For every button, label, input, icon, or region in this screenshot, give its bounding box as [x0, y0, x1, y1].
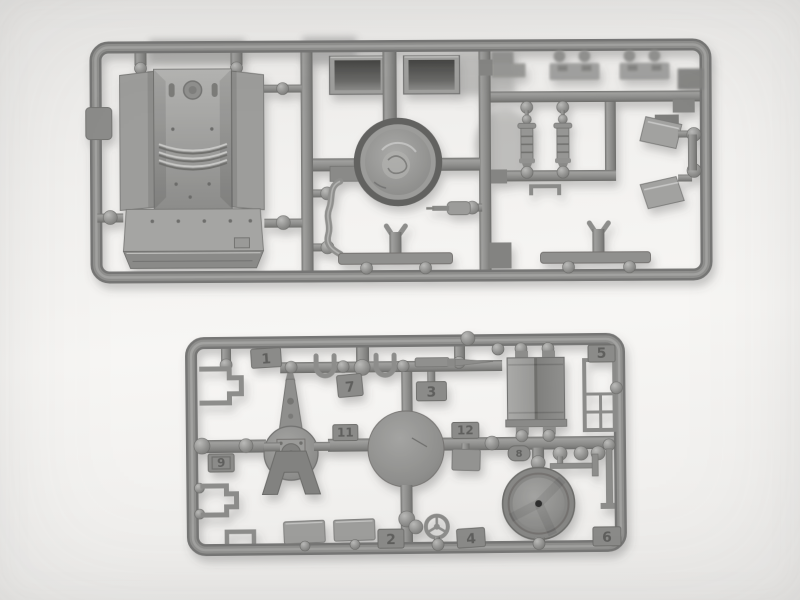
part-number-tag-12: 12: [452, 422, 479, 438]
linkage-rod-part: [550, 446, 605, 477]
part-number-tag-5: 5: [588, 345, 615, 362]
part-number-tag-7: 7: [336, 373, 363, 397]
divider-sub-horizontal: [491, 170, 616, 182]
t-bracket-part: [540, 223, 650, 274]
part-number-tag-2: 2: [378, 529, 404, 548]
stowage-box-part: [403, 56, 459, 94]
part-number-label: 4: [466, 531, 477, 548]
gate-ball: [350, 539, 360, 549]
part-number-tag-1: 1: [251, 348, 282, 369]
t-bracket-part: [338, 226, 452, 275]
small-frame-part: [227, 532, 254, 544]
blurred-suspension-parts: [491, 49, 703, 90]
road-wheel-part: [502, 447, 575, 550]
model-kit-sprues-photo: 1 7 3 9 11 12 5 8: [0, 0, 800, 600]
part-number-tag-6: 6: [593, 527, 621, 546]
curved-bracket-part: [313, 181, 340, 254]
divider-right: [478, 52, 491, 270]
upper-sprue: [85, 34, 706, 277]
part-number-label: 3: [426, 385, 436, 401]
part-number-label: 2: [386, 532, 396, 548]
part-number-label: 11: [337, 426, 354, 440]
bracket-part: [194, 483, 236, 519]
dome-part: [368, 411, 445, 543]
divider-top-cell: [491, 90, 700, 102]
spring-column-part: [554, 101, 572, 178]
part-number-label: 7: [344, 379, 355, 396]
gate-pad: [478, 60, 492, 76]
bracket-part: [199, 349, 242, 403]
stowage-box-part: [329, 56, 385, 94]
double-door-part: [505, 342, 567, 442]
gate-pad: [491, 169, 507, 183]
lower-sprue: 1 7 3 9 11 12 5 8: [191, 330, 624, 554]
gun-mount-part: [261, 373, 330, 495]
flat-plate-part: [283, 520, 325, 544]
divider-left: [300, 52, 313, 270]
divider-sub-vertical: [605, 102, 616, 170]
part-number-label: 5: [597, 346, 607, 362]
flat-plate-part: [333, 519, 375, 541]
staple-bracket-part: [531, 186, 559, 195]
small-block-part: [86, 108, 112, 140]
part-number-label: 12: [457, 423, 474, 437]
vehicle-hull-part: [96, 53, 302, 269]
dark-block-part: [489, 242, 511, 268]
part-number-label: 6: [602, 530, 612, 546]
part-number-tag-9: 9: [208, 454, 234, 472]
part-number-label: 9: [217, 456, 226, 470]
part-number-tag-11: 11: [333, 425, 358, 441]
gate-ball: [300, 541, 310, 551]
part-number-label: 1: [261, 351, 272, 368]
part-number-tag-3: 3: [416, 372, 446, 401]
axle-pin-part: [426, 201, 482, 215]
sprues-drawing: 1 7 3 9 11 12 5 8: [0, 0, 800, 600]
part-number-tag-8: 8: [508, 446, 530, 461]
part-number-label: 8: [516, 449, 523, 460]
part-number-tag-4: 4: [456, 527, 485, 548]
